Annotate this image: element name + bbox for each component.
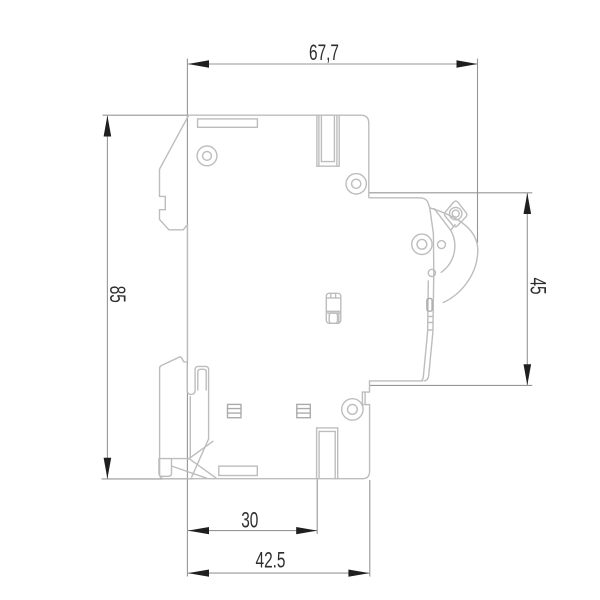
svg-text:67,7: 67,7 bbox=[309, 41, 339, 65]
svg-text:85: 85 bbox=[104, 286, 128, 303]
svg-text:42.5: 42.5 bbox=[256, 549, 286, 573]
svg-text:45: 45 bbox=[525, 277, 549, 294]
svg-text:30: 30 bbox=[241, 509, 258, 533]
